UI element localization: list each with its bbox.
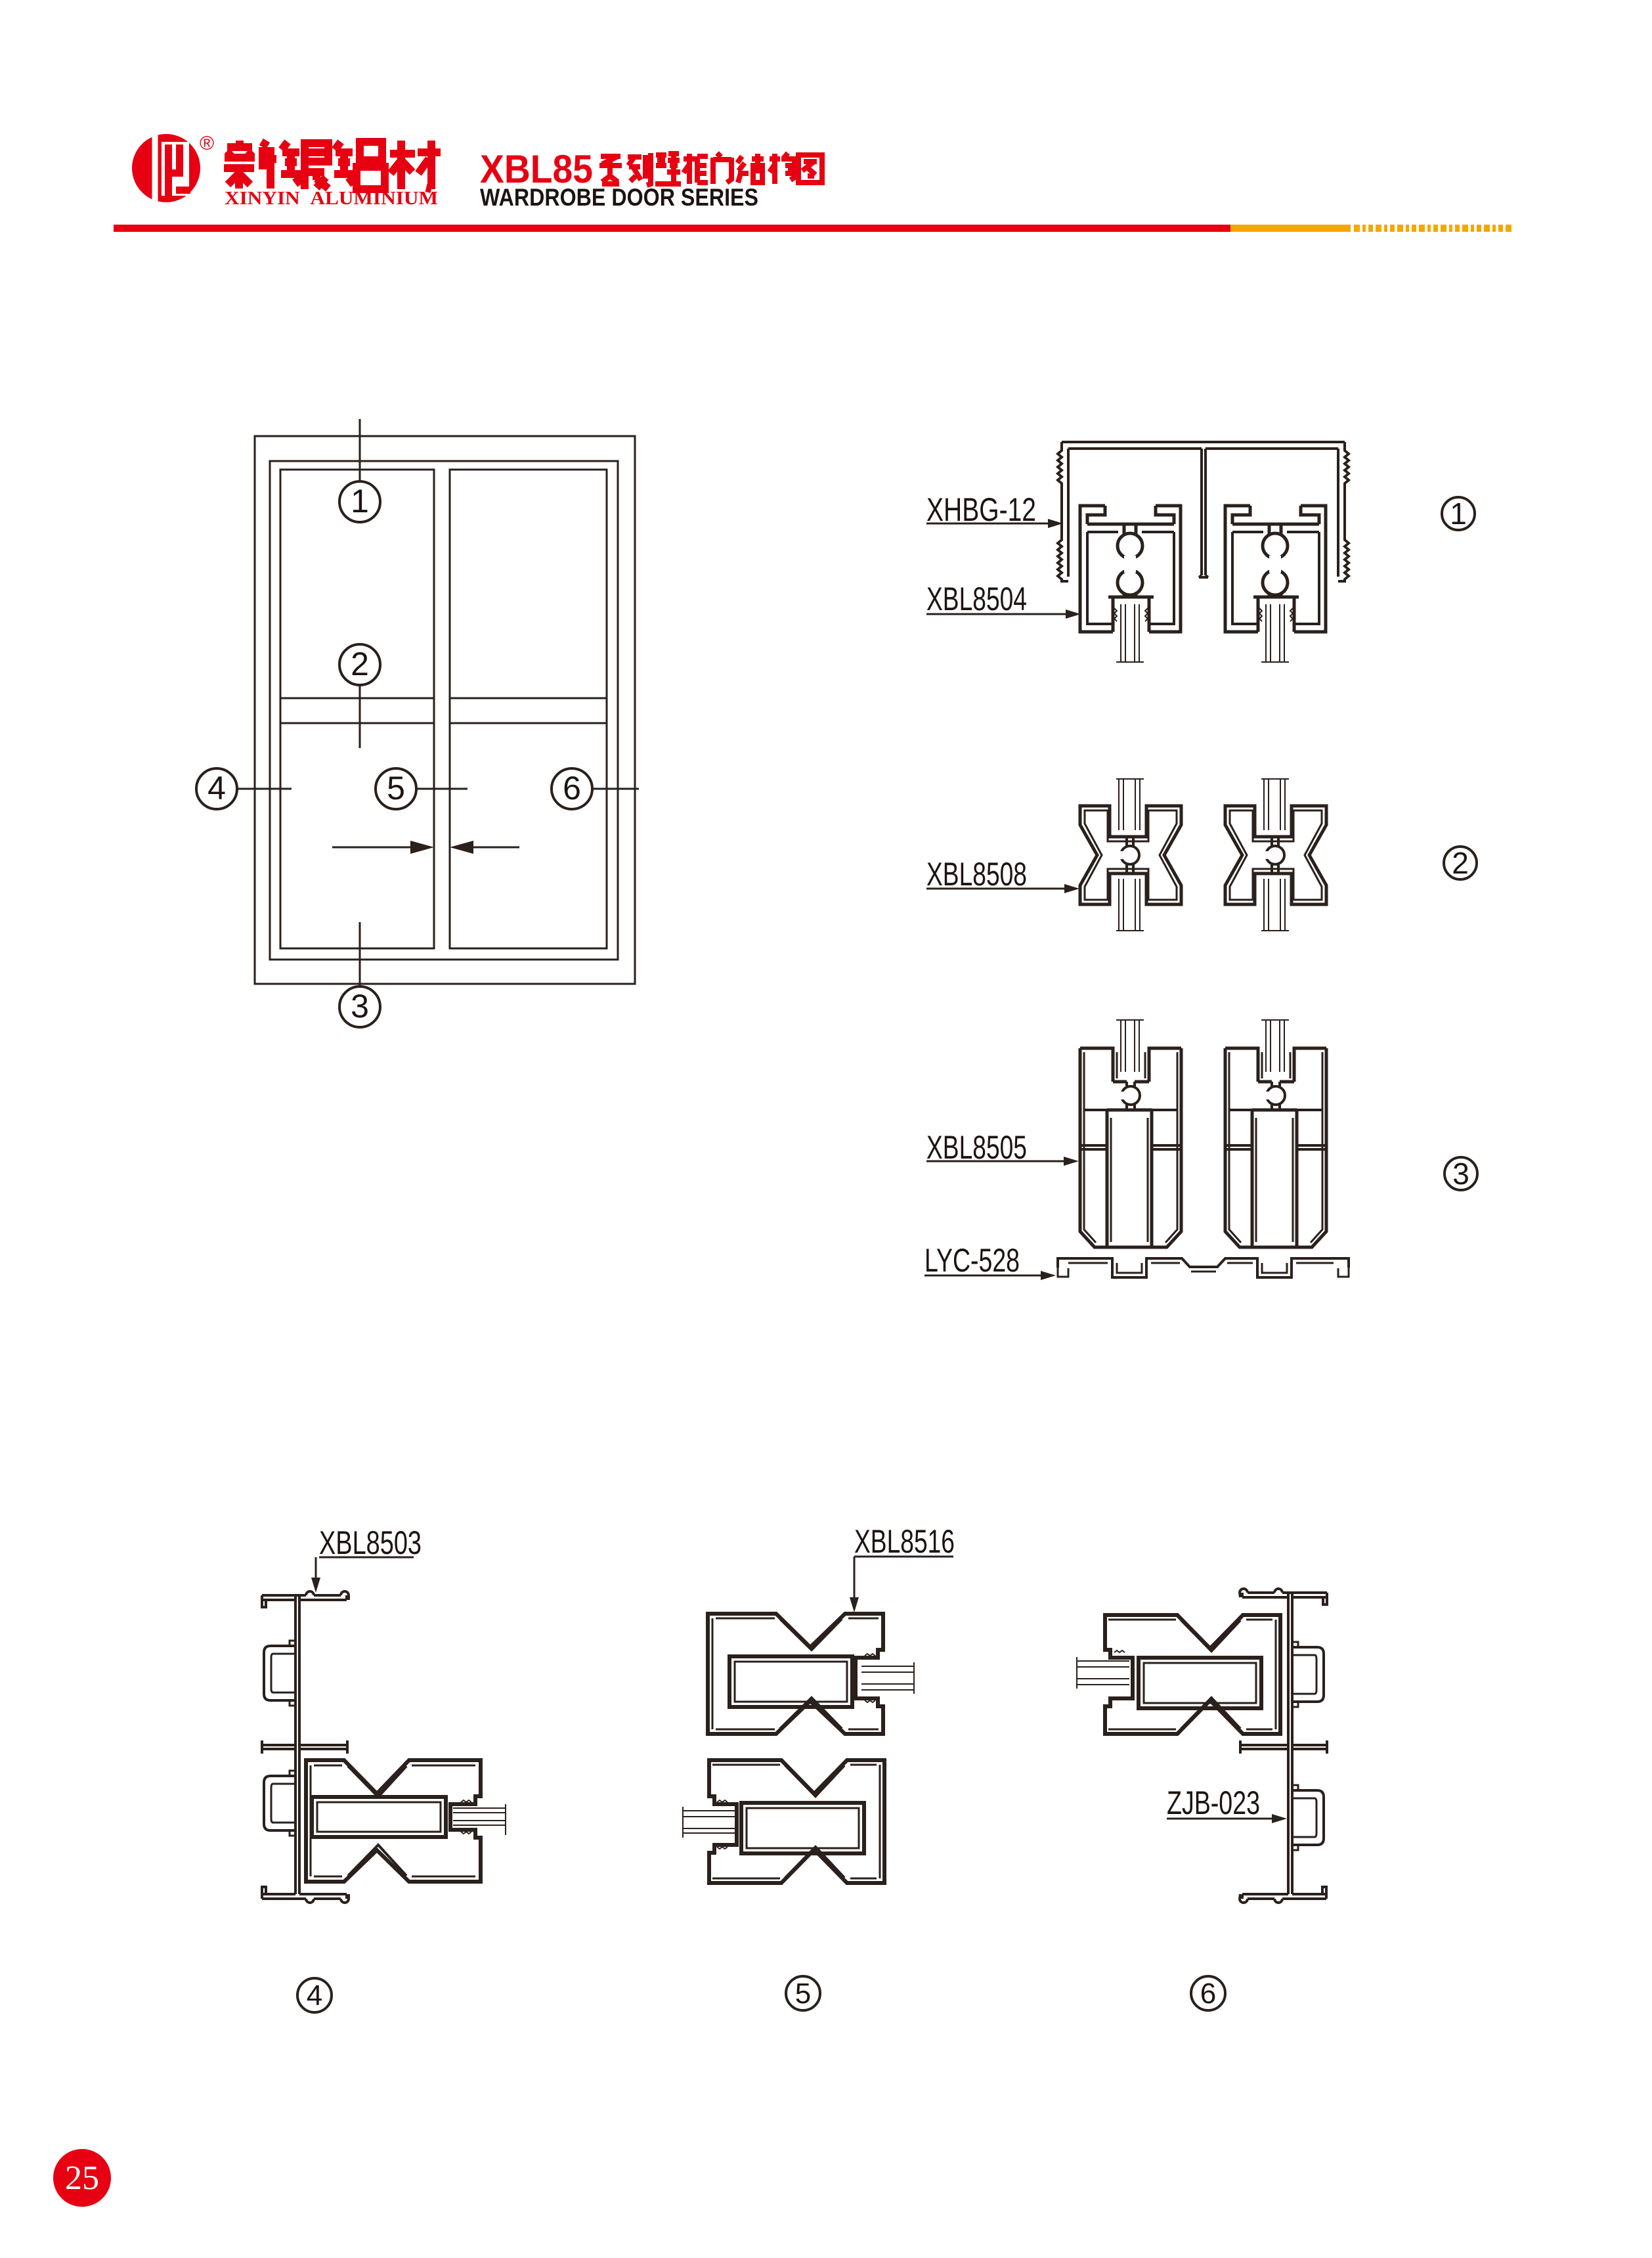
- svg-text:XBL8516: XBL8516: [854, 1523, 955, 1560]
- svg-text:XBL8503: XBL8503: [319, 1524, 422, 1561]
- svg-text:6: 6: [563, 770, 581, 807]
- svg-text:4: 4: [207, 770, 226, 807]
- svg-text:®: ®: [200, 133, 214, 154]
- svg-text:4: 4: [307, 1980, 322, 2012]
- svg-text:XBL8504: XBL8504: [926, 581, 1027, 617]
- svg-text:25: 25: [65, 2159, 99, 2197]
- svg-text:3: 3: [351, 988, 369, 1025]
- svg-text:2: 2: [351, 646, 369, 682]
- svg-text:XINYIN ALUMINIUM: XINYIN ALUMINIUM: [225, 188, 438, 209]
- svg-text:1: 1: [1450, 497, 1467, 531]
- svg-text:2: 2: [1452, 846, 1469, 880]
- svg-text:ZJB-023: ZJB-023: [1167, 1784, 1260, 1821]
- svg-text:WARDROBE DOOR SERIES: WARDROBE DOOR SERIES: [480, 184, 758, 211]
- svg-text:LYC-528: LYC-528: [924, 1242, 1020, 1279]
- svg-text:5: 5: [387, 770, 405, 807]
- svg-text:3: 3: [1452, 1157, 1469, 1191]
- svg-text:1: 1: [351, 483, 369, 520]
- svg-text:6: 6: [1200, 1978, 1216, 2010]
- svg-text:XBL8508: XBL8508: [926, 856, 1027, 893]
- svg-text:5: 5: [795, 1978, 811, 2010]
